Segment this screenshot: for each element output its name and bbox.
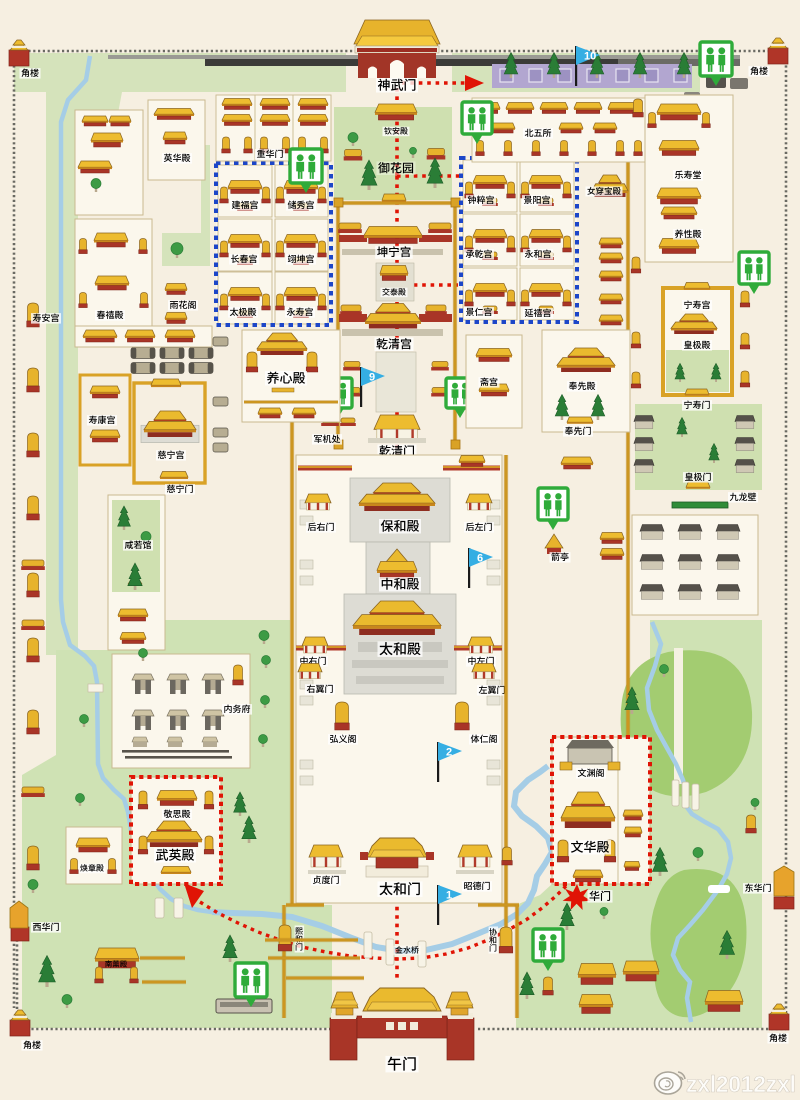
svg-text:zxl2012zxl: zxl2012zxl bbox=[686, 1071, 796, 1097]
svg-text:10: 10 bbox=[584, 51, 596, 63]
svg-text:1: 1 bbox=[446, 890, 452, 902]
svg-text:9: 9 bbox=[369, 372, 375, 384]
svg-text:2: 2 bbox=[446, 747, 452, 759]
svg-text:6: 6 bbox=[477, 553, 483, 565]
